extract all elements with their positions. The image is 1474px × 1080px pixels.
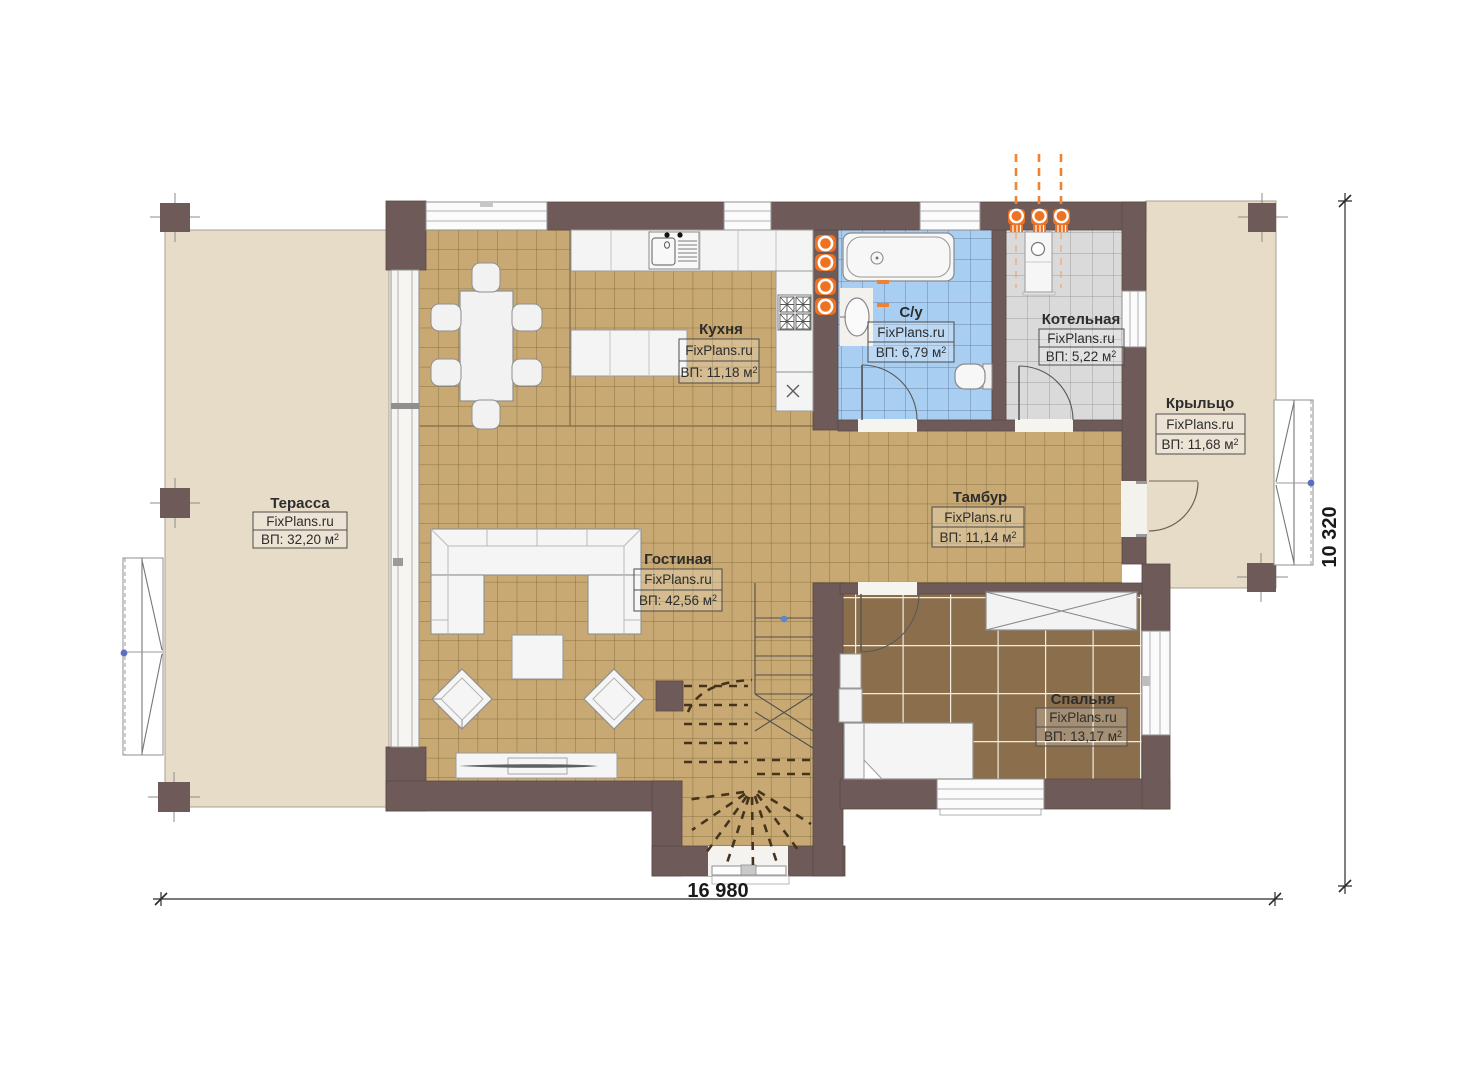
svg-text:ВП: 11,68 м2: ВП: 11,68 м2 — [1161, 437, 1238, 452]
svg-text:ВП: 13,17 м2: ВП: 13,17 м2 — [1044, 729, 1122, 744]
svg-text:ВП: 6,79 м2: ВП: 6,79 м2 — [876, 345, 947, 360]
svg-text:FixPlans.ru: FixPlans.ru — [1047, 331, 1115, 346]
svg-text:ВП: 5,22 м2: ВП: 5,22 м2 — [1046, 349, 1117, 364]
svg-text:FixPlans.ru: FixPlans.ru — [266, 514, 334, 529]
svg-text:ВП: 11,14 м2: ВП: 11,14 м2 — [939, 530, 1016, 545]
svg-text:С/у: С/у — [899, 304, 923, 321]
svg-text:FixPlans.ru: FixPlans.ru — [944, 510, 1012, 525]
svg-text:FixPlans.ru: FixPlans.ru — [1049, 710, 1117, 725]
svg-text:16 980: 16 980 — [687, 880, 748, 902]
svg-text:Котельная: Котельная — [1042, 311, 1121, 328]
svg-text:Кухня: Кухня — [699, 321, 743, 338]
svg-text:Спальня: Спальня — [1051, 691, 1116, 708]
svg-text:Тамбур: Тамбур — [953, 489, 1007, 506]
svg-text:Гостиная: Гостиная — [644, 551, 712, 568]
svg-text:Крыльцо: Крыльцо — [1166, 395, 1234, 412]
svg-text:FixPlans.ru: FixPlans.ru — [1166, 417, 1234, 432]
svg-text:FixPlans.ru: FixPlans.ru — [685, 343, 753, 358]
svg-text:ВП: 11,18 м2: ВП: 11,18 м2 — [680, 365, 757, 380]
svg-text:ВП: 32,20 м2: ВП: 32,20 м2 — [261, 532, 339, 547]
svg-text:ВП: 42,56 м2: ВП: 42,56 м2 — [639, 593, 717, 608]
svg-text:FixPlans.ru: FixPlans.ru — [644, 572, 712, 587]
svg-text:10 320: 10 320 — [1319, 506, 1341, 567]
svg-text:Терасса: Терасса — [270, 495, 330, 512]
svg-text:FixPlans.ru: FixPlans.ru — [877, 325, 945, 340]
